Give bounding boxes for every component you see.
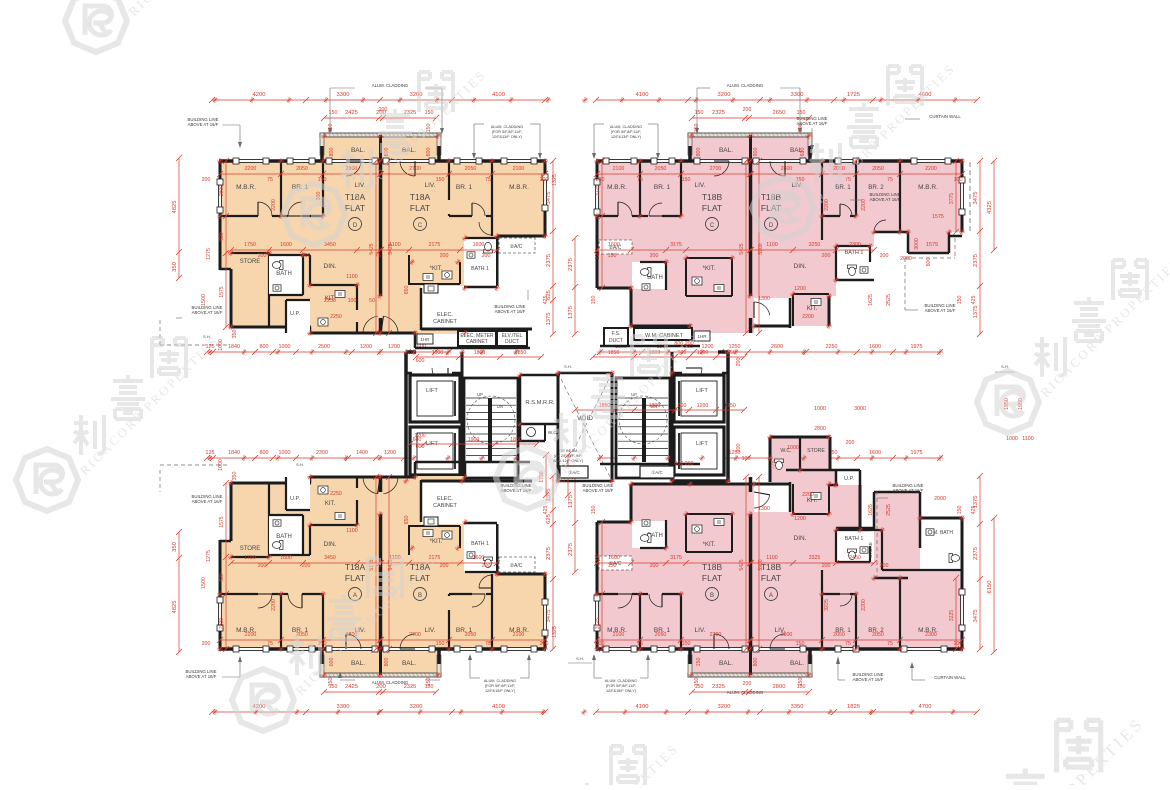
svg-text:350: 350 bbox=[232, 472, 238, 481]
svg-text:150: 150 bbox=[608, 563, 617, 569]
svg-text:C: C bbox=[418, 223, 423, 229]
svg-text:930: 930 bbox=[219, 573, 225, 582]
svg-text:150: 150 bbox=[695, 110, 704, 116]
svg-text:1750: 1750 bbox=[244, 555, 256, 561]
svg-text:FLAT: FLAT bbox=[410, 203, 430, 213]
svg-text:1300: 1300 bbox=[758, 296, 770, 302]
svg-text:930: 930 bbox=[219, 232, 225, 241]
svg-text:M.B.R.: M.B.R. bbox=[236, 184, 256, 191]
svg-text:FLAT: FLAT bbox=[761, 573, 781, 583]
svg-text:150: 150 bbox=[798, 124, 804, 133]
svg-text:ALUM. CLADDING: ALUM. CLADDING bbox=[727, 690, 764, 695]
svg-text:ELEC.: ELEC. bbox=[437, 496, 453, 502]
svg-text:3175: 3175 bbox=[670, 242, 682, 248]
svg-text:5900: 5900 bbox=[758, 243, 764, 254]
svg-text:S.H.: S.H. bbox=[296, 462, 304, 467]
svg-text:ABOVE AT 16/F: ABOVE AT 16/F bbox=[192, 310, 223, 315]
svg-text:800: 800 bbox=[260, 450, 269, 456]
svg-text:C: C bbox=[710, 223, 715, 229]
svg-text:800 200: 800 200 bbox=[674, 461, 693, 467]
svg-text:2200: 2200 bbox=[861, 599, 867, 611]
svg-text:3200: 3200 bbox=[410, 704, 423, 710]
svg-text:3350: 3350 bbox=[791, 704, 804, 710]
svg-text:BATH 1: BATH 1 bbox=[471, 266, 489, 272]
svg-text:1600: 1600 bbox=[473, 242, 485, 248]
svg-text:1850: 1850 bbox=[608, 350, 620, 356]
svg-text:LIV.: LIV. bbox=[695, 182, 706, 189]
svg-text:R.S.M.R.R.: R.S.M.R.R. bbox=[525, 400, 555, 406]
svg-text:600: 600 bbox=[800, 148, 806, 157]
svg-text:T18B: T18B bbox=[702, 562, 723, 572]
svg-text:1800: 1800 bbox=[474, 350, 486, 356]
svg-text:1275: 1275 bbox=[206, 550, 212, 562]
svg-text:1000: 1000 bbox=[814, 406, 826, 412]
svg-text:BATH 1: BATH 1 bbox=[471, 541, 489, 547]
svg-text:LIV.: LIV. bbox=[695, 627, 706, 634]
svg-text:1850: 1850 bbox=[515, 350, 527, 356]
svg-text:U.P.: U.P. bbox=[290, 311, 300, 317]
svg-text:1575: 1575 bbox=[926, 242, 938, 248]
svg-text:75: 75 bbox=[887, 177, 893, 183]
svg-text:800: 800 bbox=[753, 148, 759, 157]
svg-text:150: 150 bbox=[682, 641, 691, 647]
svg-text:2500: 2500 bbox=[318, 344, 330, 350]
svg-text:(FOR 5/F,8/F,11/F,: (FOR 5/F,8/F,11/F, bbox=[485, 684, 516, 688]
svg-text:DIN.: DIN. bbox=[324, 541, 337, 548]
svg-text:1975: 1975 bbox=[911, 450, 923, 456]
svg-text:1100: 1100 bbox=[346, 274, 357, 280]
svg-text:1840: 1840 bbox=[228, 450, 240, 456]
svg-text:T18A: T18A bbox=[345, 562, 366, 572]
svg-text:T18B: T18B bbox=[702, 192, 723, 202]
svg-text:600: 600 bbox=[426, 148, 432, 157]
svg-text:1000: 1000 bbox=[1006, 436, 1018, 442]
svg-text:150: 150 bbox=[608, 253, 617, 259]
svg-text:1500: 1500 bbox=[201, 577, 207, 589]
svg-text:D: D bbox=[353, 223, 358, 229]
svg-text:2200: 2200 bbox=[802, 314, 814, 320]
svg-text:2200: 2200 bbox=[271, 199, 277, 211]
svg-text:CABINET: CABINET bbox=[433, 503, 457, 509]
svg-text:75: 75 bbox=[485, 177, 491, 183]
svg-text:CURTAIN WALL: CURTAIN WALL bbox=[934, 675, 966, 680]
svg-text:350: 350 bbox=[232, 330, 238, 339]
svg-text:2800: 2800 bbox=[773, 684, 786, 690]
svg-text:②A/C: ②A/C bbox=[510, 563, 523, 569]
svg-text:75: 75 bbox=[887, 641, 893, 647]
svg-text:3225: 3225 bbox=[949, 610, 955, 621]
svg-text:U.P.: U.P. bbox=[844, 476, 854, 482]
svg-text:150: 150 bbox=[957, 296, 963, 305]
svg-text:4100: 4100 bbox=[636, 704, 649, 710]
svg-text:2700: 2700 bbox=[409, 166, 421, 172]
svg-text:1200: 1200 bbox=[794, 516, 806, 522]
svg-text:4825: 4825 bbox=[172, 601, 178, 614]
svg-text:1400: 1400 bbox=[356, 450, 368, 456]
svg-text:4825: 4825 bbox=[172, 201, 178, 214]
svg-text:1375: 1375 bbox=[568, 495, 574, 508]
svg-text:200: 200 bbox=[482, 563, 491, 569]
svg-text:②A/C: ②A/C bbox=[651, 470, 663, 475]
svg-text:DIN.: DIN. bbox=[324, 263, 337, 270]
svg-text:DUCT: DUCT bbox=[609, 338, 623, 344]
svg-text:12/F&13/F ONLY): 12/F&13/F ONLY) bbox=[492, 135, 523, 139]
svg-text:BAL.: BAL. bbox=[402, 660, 416, 667]
svg-text:2375: 2375 bbox=[546, 547, 552, 560]
svg-text:200: 200 bbox=[650, 253, 659, 259]
svg-text:100: 100 bbox=[742, 456, 751, 462]
svg-text:2100: 2100 bbox=[513, 632, 525, 638]
svg-text:LIV.: LIV. bbox=[425, 627, 436, 634]
svg-text:1500: 1500 bbox=[201, 294, 207, 306]
svg-text:2375: 2375 bbox=[568, 543, 574, 556]
svg-text:1575: 1575 bbox=[219, 516, 225, 527]
svg-text:3175: 3175 bbox=[595, 618, 601, 629]
svg-text:200: 200 bbox=[650, 563, 659, 569]
svg-text:4200: 4200 bbox=[253, 92, 266, 98]
svg-text:2050: 2050 bbox=[833, 632, 845, 638]
svg-text:M.B.R.: M.B.R. bbox=[607, 184, 627, 191]
svg-text:LIV.: LIV. bbox=[425, 182, 436, 189]
svg-text:3200: 3200 bbox=[718, 704, 731, 710]
svg-text:BAL.: BAL. bbox=[719, 147, 733, 154]
svg-text:2650: 2650 bbox=[773, 110, 786, 116]
svg-text:2200: 2200 bbox=[595, 554, 601, 565]
svg-text:200: 200 bbox=[202, 641, 211, 647]
svg-text:CABINET: CABINET bbox=[433, 319, 457, 325]
svg-text:DIN.: DIN. bbox=[794, 535, 807, 542]
svg-text:FLAT: FLAT bbox=[345, 573, 365, 583]
svg-text:*KIT.: *KIT. bbox=[430, 266, 443, 272]
svg-text:DN: DN bbox=[497, 404, 503, 409]
svg-text:DIN.: DIN. bbox=[794, 263, 807, 270]
svg-text:1750: 1750 bbox=[244, 242, 256, 248]
svg-text:775: 775 bbox=[771, 461, 777, 470]
svg-text:2375: 2375 bbox=[973, 254, 979, 267]
svg-text:2800: 2800 bbox=[814, 426, 826, 432]
svg-text:BAL.: BAL. bbox=[351, 660, 365, 667]
svg-text:1100: 1100 bbox=[1022, 436, 1033, 442]
svg-text:KIT.: KIT. bbox=[325, 501, 336, 507]
svg-text:150: 150 bbox=[797, 110, 806, 116]
svg-text:150: 150 bbox=[329, 110, 338, 116]
svg-text:200: 200 bbox=[482, 253, 491, 259]
svg-text:600: 600 bbox=[416, 358, 425, 364]
svg-text:200: 200 bbox=[736, 444, 742, 453]
svg-text:1900: 1900 bbox=[468, 437, 480, 443]
svg-text:2050: 2050 bbox=[465, 632, 477, 638]
svg-text:U.P.: U.P. bbox=[290, 496, 300, 502]
svg-text:2700: 2700 bbox=[710, 632, 722, 638]
svg-text:150: 150 bbox=[796, 641, 805, 647]
svg-text:2050: 2050 bbox=[655, 632, 667, 638]
svg-text:3300: 3300 bbox=[337, 704, 350, 710]
svg-text:2050: 2050 bbox=[655, 166, 667, 172]
svg-text:200: 200 bbox=[440, 253, 449, 259]
svg-text:ABOVE AT 16/F: ABOVE AT 16/F bbox=[893, 488, 924, 493]
svg-text:ALUM. CLADDING: ALUM. CLADDING bbox=[727, 83, 764, 88]
svg-text:75: 75 bbox=[845, 641, 851, 647]
svg-text:2175: 2175 bbox=[429, 242, 441, 248]
svg-text:350: 350 bbox=[172, 262, 178, 272]
svg-text:1275: 1275 bbox=[206, 248, 212, 260]
svg-text:ABOVE AT 16/F: ABOVE AT 16/F bbox=[188, 122, 219, 127]
svg-text:1325: 1325 bbox=[552, 626, 558, 638]
svg-text:2200: 2200 bbox=[802, 492, 814, 498]
svg-text:200: 200 bbox=[822, 253, 831, 259]
svg-text:150: 150 bbox=[694, 124, 700, 133]
svg-text:BAL.: BAL. bbox=[790, 660, 804, 667]
svg-text:4700: 4700 bbox=[919, 704, 932, 710]
svg-text:4325: 4325 bbox=[987, 201, 993, 214]
svg-text:1625: 1625 bbox=[868, 294, 874, 306]
svg-text:425: 425 bbox=[543, 296, 549, 305]
svg-text:(FOR 5/F,8/F,11/F,: (FOR 5/F,8/F,11/F, bbox=[606, 684, 637, 688]
svg-text:200: 200 bbox=[743, 107, 752, 113]
svg-text:3300: 3300 bbox=[337, 92, 350, 98]
svg-text:150: 150 bbox=[694, 678, 700, 687]
svg-text:200: 200 bbox=[880, 253, 889, 259]
svg-text:BATH: BATH bbox=[276, 271, 292, 277]
svg-text:1200: 1200 bbox=[794, 286, 806, 292]
svg-text:50: 50 bbox=[369, 298, 375, 304]
svg-text:*KIT.: *KIT. bbox=[430, 539, 443, 545]
svg-text:2300: 2300 bbox=[316, 450, 328, 456]
svg-text:1200: 1200 bbox=[414, 433, 425, 439]
svg-text:KIT.: KIT. bbox=[807, 306, 818, 312]
svg-text:ALUM. CLADDING: ALUM. CLADDING bbox=[372, 680, 409, 685]
svg-text:1600: 1600 bbox=[869, 344, 881, 350]
svg-text:2200: 2200 bbox=[595, 248, 601, 259]
svg-text:150: 150 bbox=[591, 506, 597, 515]
svg-text:1000: 1000 bbox=[218, 459, 224, 471]
svg-text:1100: 1100 bbox=[766, 555, 777, 561]
svg-text:2200: 2200 bbox=[245, 632, 257, 638]
svg-text:2425: 2425 bbox=[345, 110, 358, 116]
svg-text:3775: 3775 bbox=[949, 193, 955, 204]
svg-text:D: D bbox=[769, 223, 774, 229]
svg-text:2300: 2300 bbox=[925, 632, 937, 638]
svg-text:425: 425 bbox=[971, 296, 977, 305]
svg-text:1825: 1825 bbox=[847, 704, 860, 710]
svg-text:2100: 2100 bbox=[613, 632, 625, 638]
svg-text:2050: 2050 bbox=[296, 166, 308, 172]
svg-text:200: 200 bbox=[846, 440, 855, 446]
svg-text:2450: 2450 bbox=[849, 555, 861, 561]
svg-text:A: A bbox=[769, 593, 773, 599]
svg-text:3175: 3175 bbox=[670, 555, 682, 561]
svg-text:2600: 2600 bbox=[771, 344, 783, 350]
svg-text:800: 800 bbox=[260, 344, 269, 350]
svg-text:1000: 1000 bbox=[787, 445, 799, 451]
svg-text:BATH 1: BATH 1 bbox=[845, 536, 864, 542]
svg-text:2700: 2700 bbox=[710, 166, 722, 172]
svg-text:150: 150 bbox=[328, 124, 334, 133]
svg-text:M.B.R.: M.B.R. bbox=[918, 184, 938, 191]
svg-text:FLAT: FLAT bbox=[702, 203, 722, 213]
svg-text:M. BATH: M. BATH bbox=[933, 530, 953, 536]
svg-text:ALUM. CLADDING: ALUM. CLADDING bbox=[605, 679, 637, 683]
svg-text:1600: 1600 bbox=[280, 242, 292, 248]
svg-text:100: 100 bbox=[348, 298, 357, 304]
svg-text:1575: 1575 bbox=[932, 214, 944, 220]
svg-text:1600: 1600 bbox=[869, 450, 881, 456]
svg-text:75: 75 bbox=[267, 177, 273, 183]
svg-text:5425: 5425 bbox=[739, 559, 745, 570]
svg-text:S.H.: S.H. bbox=[564, 364, 572, 369]
svg-text:LIFT: LIFT bbox=[696, 441, 708, 447]
svg-text:4100: 4100 bbox=[492, 92, 505, 98]
svg-text:1725: 1725 bbox=[847, 92, 860, 98]
svg-text:2200: 2200 bbox=[925, 166, 937, 172]
svg-text:3175: 3175 bbox=[595, 185, 601, 196]
svg-text:2525: 2525 bbox=[886, 504, 892, 516]
svg-text:1250: 1250 bbox=[724, 403, 736, 409]
svg-text:2250: 2250 bbox=[324, 298, 336, 304]
svg-text:BATH: BATH bbox=[276, 534, 292, 540]
svg-text:5425: 5425 bbox=[388, 243, 394, 254]
svg-text:STORE: STORE bbox=[807, 448, 825, 454]
svg-text:200: 200 bbox=[596, 177, 605, 183]
svg-text:3250: 3250 bbox=[809, 242, 821, 248]
svg-text:ALUM. CLADDING: ALUM. CLADDING bbox=[372, 83, 409, 88]
svg-text:ALUM. CLADDING: ALUM. CLADDING bbox=[484, 679, 516, 683]
svg-text:1200: 1200 bbox=[360, 344, 372, 350]
svg-text:*KIT.: *KIT. bbox=[703, 542, 716, 548]
svg-text:STORE: STORE bbox=[240, 546, 261, 552]
svg-text:12/F&13/F ONLY): 12/F&13/F ONLY) bbox=[611, 135, 642, 139]
svg-text:100: 100 bbox=[954, 177, 963, 183]
svg-text:800: 800 bbox=[753, 658, 759, 667]
svg-text:ABOVE AT 16/F: ABOVE AT 16/F bbox=[925, 308, 956, 313]
svg-text:350: 350 bbox=[172, 542, 178, 552]
svg-text:2050: 2050 bbox=[872, 632, 884, 638]
svg-text:BR. 2: BR. 2 bbox=[868, 184, 884, 191]
svg-text:1000: 1000 bbox=[279, 344, 291, 350]
svg-text:1200: 1200 bbox=[388, 344, 400, 350]
svg-text:2100: 2100 bbox=[513, 166, 525, 172]
svg-text:3450: 3450 bbox=[324, 555, 336, 561]
svg-text:1100: 1100 bbox=[346, 528, 357, 534]
svg-text:2375: 2375 bbox=[568, 258, 574, 271]
svg-text:BR. 1: BR. 1 bbox=[456, 184, 473, 191]
svg-text:ELEC.: ELEC. bbox=[437, 312, 453, 318]
svg-text:3475: 3475 bbox=[973, 610, 979, 623]
svg-text:2200: 2200 bbox=[861, 199, 867, 211]
svg-text:ABOVE AT 16/F: ABOVE AT 16/F bbox=[186, 674, 217, 679]
svg-text:1200: 1200 bbox=[697, 350, 709, 356]
svg-text:M.B.R.: M.B.R. bbox=[509, 184, 529, 191]
svg-text:200: 200 bbox=[302, 563, 311, 569]
svg-text:800: 800 bbox=[696, 148, 702, 157]
svg-text:6150: 6150 bbox=[987, 581, 993, 594]
svg-text:1575: 1575 bbox=[219, 286, 225, 297]
svg-text:1300: 1300 bbox=[758, 506, 770, 512]
svg-text:3000: 3000 bbox=[914, 238, 920, 250]
svg-text:ABOVE AT 16/F: ABOVE AT 16/F bbox=[192, 499, 223, 504]
svg-text:1600: 1600 bbox=[608, 242, 620, 248]
svg-text:CABINET: CABINET bbox=[466, 339, 488, 345]
svg-text:625: 625 bbox=[546, 514, 552, 524]
svg-text:DUCT: DUCT bbox=[505, 339, 519, 345]
svg-text:1625: 1625 bbox=[868, 504, 874, 516]
svg-text:BAL.: BAL. bbox=[719, 660, 733, 667]
svg-text:2800: 2800 bbox=[781, 166, 793, 172]
svg-text:2375: 2375 bbox=[973, 547, 979, 560]
svg-text:1250: 1250 bbox=[724, 350, 736, 356]
svg-text:1800: 1800 bbox=[649, 403, 661, 409]
svg-text:4100: 4100 bbox=[492, 704, 505, 710]
svg-text:BR. 1: BR. 1 bbox=[654, 184, 671, 191]
svg-text:800: 800 bbox=[384, 658, 390, 667]
svg-text:2100: 2100 bbox=[613, 166, 625, 172]
svg-text:5425: 5425 bbox=[739, 243, 745, 254]
svg-text:2000: 2000 bbox=[934, 496, 946, 502]
svg-text:3475: 3475 bbox=[973, 192, 979, 205]
svg-text:200: 200 bbox=[258, 253, 267, 259]
svg-text:ABOVE AT 16/F: ABOVE AT 16/F bbox=[853, 677, 884, 682]
svg-text:600: 600 bbox=[416, 444, 425, 450]
svg-text:2250: 2250 bbox=[826, 344, 838, 350]
svg-text:1600: 1600 bbox=[608, 555, 620, 561]
svg-text:75: 75 bbox=[485, 641, 491, 647]
svg-text:BAL.: BAL. bbox=[351, 147, 365, 154]
svg-text:F.S.: F.S. bbox=[612, 331, 621, 337]
svg-text:75: 75 bbox=[267, 641, 273, 647]
svg-text:CURTAIN WALL: CURTAIN WALL bbox=[929, 114, 961, 119]
svg-text:425: 425 bbox=[543, 506, 549, 515]
svg-text:STORE: STORE bbox=[868, 542, 873, 558]
svg-text:T18A: T18A bbox=[410, 192, 431, 202]
svg-text:200: 200 bbox=[258, 563, 267, 569]
svg-text:1375: 1375 bbox=[546, 313, 552, 326]
svg-text:600: 600 bbox=[926, 258, 932, 267]
svg-text:ABOVE AT 16/F: ABOVE AT 16/F bbox=[495, 309, 526, 314]
svg-text:600: 600 bbox=[678, 403, 687, 409]
svg-text:650: 650 bbox=[404, 286, 410, 295]
svg-text:3325: 3325 bbox=[809, 555, 821, 561]
svg-text:150: 150 bbox=[436, 177, 445, 183]
svg-text:1375: 1375 bbox=[568, 306, 574, 319]
svg-text:2700: 2700 bbox=[409, 632, 421, 638]
svg-text:2525: 2525 bbox=[886, 294, 892, 306]
svg-text:2250: 2250 bbox=[330, 314, 342, 320]
svg-text:12/F&15/F ONLY): 12/F&15/F ONLY) bbox=[606, 689, 637, 693]
svg-text:ALUM. CLADDING: ALUM. CLADDING bbox=[610, 125, 642, 129]
svg-text:2375: 2375 bbox=[546, 254, 552, 267]
svg-text:UP: UP bbox=[477, 392, 483, 397]
svg-text:2800: 2800 bbox=[219, 185, 225, 196]
svg-text:1200: 1200 bbox=[384, 450, 396, 456]
svg-text:5900: 5900 bbox=[758, 559, 764, 570]
svg-text:2050: 2050 bbox=[465, 166, 477, 172]
svg-text:1HR: 1HR bbox=[420, 337, 430, 342]
svg-text:150: 150 bbox=[682, 177, 691, 183]
svg-text:LIFT: LIFT bbox=[426, 388, 438, 394]
svg-text:1600: 1600 bbox=[280, 555, 292, 561]
svg-text:800: 800 bbox=[329, 148, 335, 157]
svg-text:2800: 2800 bbox=[781, 632, 793, 638]
svg-text:2325: 2325 bbox=[712, 110, 725, 116]
svg-text:2200: 2200 bbox=[245, 166, 257, 172]
svg-text:STORE: STORE bbox=[240, 259, 261, 265]
svg-text:1850: 1850 bbox=[510, 437, 522, 443]
svg-text:1975: 1975 bbox=[911, 344, 923, 350]
svg-text:150: 150 bbox=[436, 641, 445, 647]
svg-text:ABOVE AT 16/F: ABOVE AT 16/F bbox=[583, 488, 614, 493]
svg-text:1000: 1000 bbox=[279, 450, 291, 456]
svg-text:150: 150 bbox=[798, 678, 804, 687]
